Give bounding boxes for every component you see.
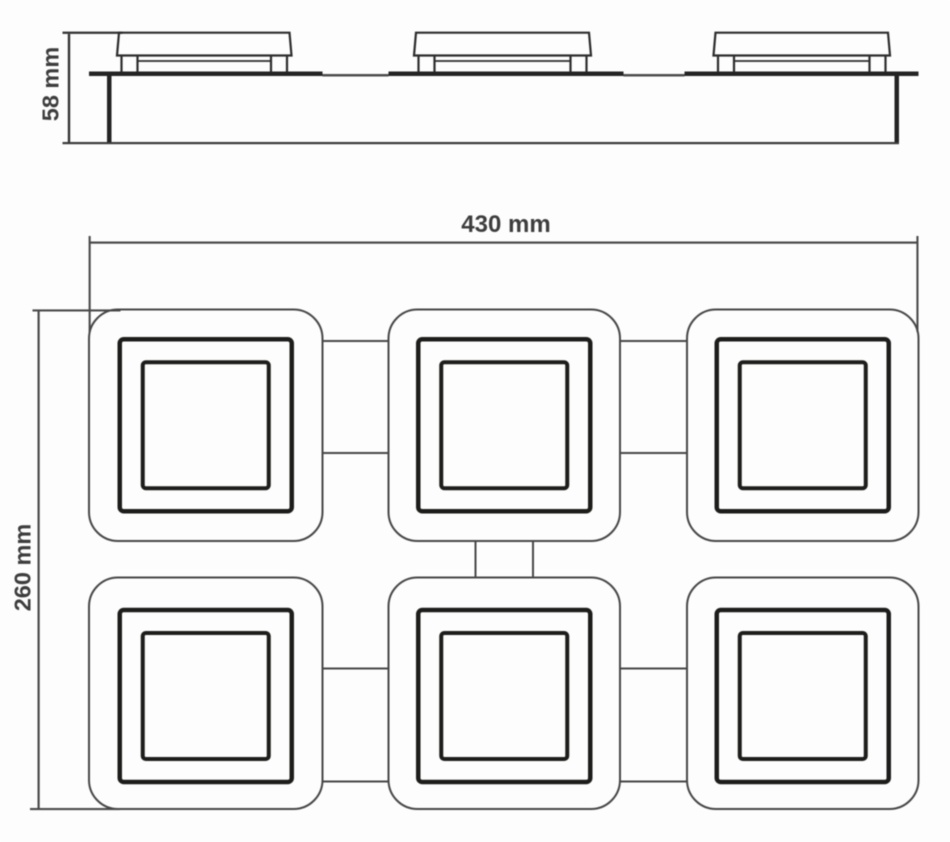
svg-text:260 mm: 260 mm	[10, 524, 36, 612]
svg-text:58 mm: 58 mm	[38, 47, 64, 121]
svg-text:430 mm: 430 mm	[461, 211, 550, 238]
